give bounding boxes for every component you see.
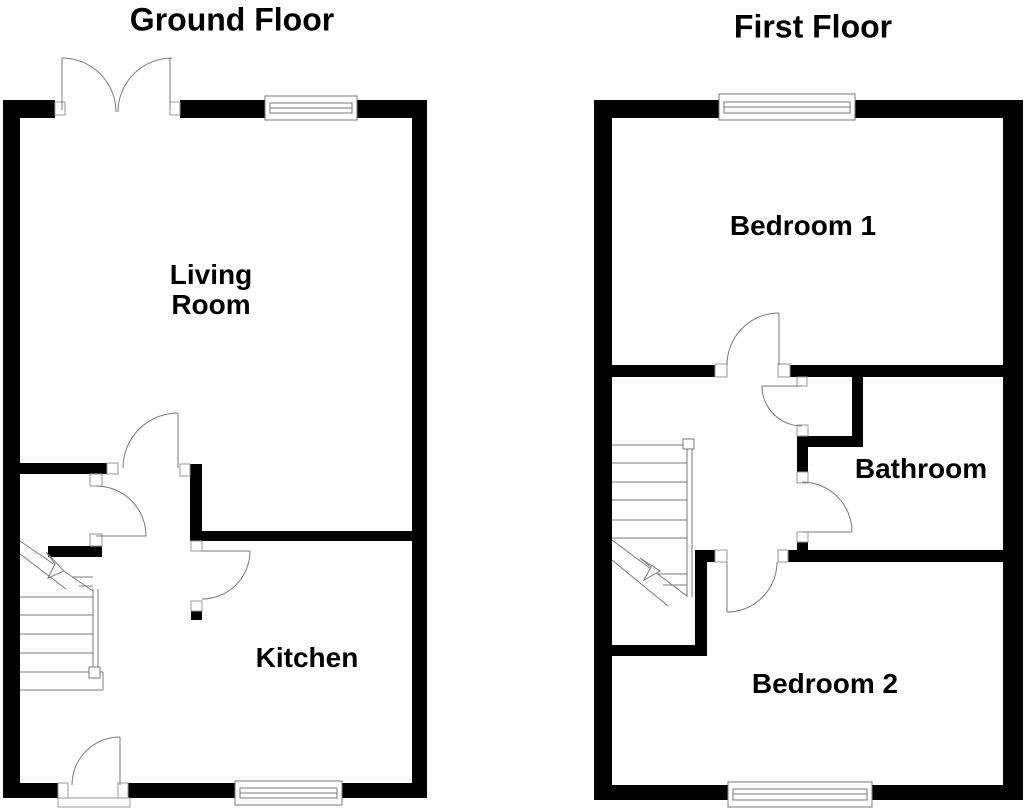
door-swing-arc <box>727 562 777 612</box>
ground-floor-plan <box>3 58 427 807</box>
wall-segment <box>707 550 715 562</box>
wall-segment <box>412 100 427 798</box>
floorplan-canvas: Ground Floor First Floor Living Room Kit… <box>0 0 1024 811</box>
door-jamb <box>118 783 128 798</box>
door-jamb <box>797 377 807 386</box>
wall-segment <box>788 550 1003 562</box>
wall-segment <box>180 100 265 118</box>
ground-floor-door-jambs <box>55 102 202 807</box>
door-swing-arc <box>72 737 120 785</box>
ground-floor-title: Ground Floor <box>130 2 334 39</box>
room-label-bedroom-2: Bedroom 2 <box>752 669 898 699</box>
wall-segment <box>190 531 427 541</box>
wall-segment <box>3 100 20 798</box>
wall-segment <box>612 645 707 656</box>
door-swing-arc <box>123 413 178 468</box>
door-threshold <box>58 798 130 807</box>
ground-floor-walls <box>3 100 427 798</box>
wall-segment <box>340 783 427 798</box>
newel-post <box>683 439 694 449</box>
wall-segment <box>594 785 728 800</box>
first-floor-plan <box>594 94 1023 807</box>
door-swing-arc <box>202 551 250 599</box>
room-label-bedroom-1: Bedroom 1 <box>730 211 876 241</box>
ground-floor-windows <box>235 96 357 805</box>
wall-segment <box>128 783 235 798</box>
wall-segment <box>594 100 612 800</box>
wall-segment <box>594 100 719 118</box>
door-jamb <box>170 102 180 115</box>
door-jamb <box>55 102 65 115</box>
wall-segment <box>612 365 715 377</box>
wall-segment <box>797 436 808 472</box>
wall-segment <box>855 100 1023 118</box>
first-floor-stairs <box>612 439 694 606</box>
door-jamb <box>778 364 790 377</box>
first-floor-doors <box>727 313 852 612</box>
door-swing-arc <box>62 58 116 112</box>
door-jamb <box>797 425 808 436</box>
newel-post <box>89 667 100 678</box>
wall-segment <box>695 550 707 655</box>
door-jamb <box>191 601 202 611</box>
door-jamb <box>180 464 190 476</box>
room-label-bathroom: Bathroom <box>855 454 987 484</box>
door-jamb <box>107 463 118 474</box>
room-label-kitchen: Kitchen <box>256 643 359 673</box>
wall-segment <box>3 100 55 118</box>
stair-winder <box>612 540 687 596</box>
door-swing-arc <box>96 486 146 536</box>
wall-segment <box>807 436 863 447</box>
wall-segment <box>1003 100 1023 800</box>
door-jamb <box>715 550 727 562</box>
door-swing-arc <box>802 482 852 532</box>
wall-segment <box>790 365 1003 377</box>
stair-winder <box>612 560 668 606</box>
door-jamb <box>90 474 102 486</box>
door-jamb <box>715 364 727 377</box>
door-swing-arc <box>118 58 172 112</box>
door-jamb <box>58 783 68 798</box>
door-swing-arc <box>762 386 802 426</box>
door-jamb <box>778 550 788 562</box>
door-jamb <box>797 532 808 542</box>
door-swing-arc <box>727 313 779 365</box>
wall-segment <box>191 611 202 620</box>
door-jamb <box>797 472 808 483</box>
wall-segment <box>20 463 107 474</box>
ground-floor-stairs <box>20 541 103 690</box>
first-floor-windows <box>719 94 872 807</box>
first-floor-title: First Floor <box>734 9 892 46</box>
wall-segment <box>3 783 58 798</box>
wall-segment <box>48 546 102 557</box>
first-floor-door-jambs <box>715 364 808 562</box>
stair-direction-arrow <box>640 558 660 580</box>
room-label-living-room: Living Room <box>145 260 277 320</box>
wall-segment <box>190 464 202 541</box>
wall-segment <box>872 785 1023 800</box>
door-jamb <box>191 541 202 551</box>
